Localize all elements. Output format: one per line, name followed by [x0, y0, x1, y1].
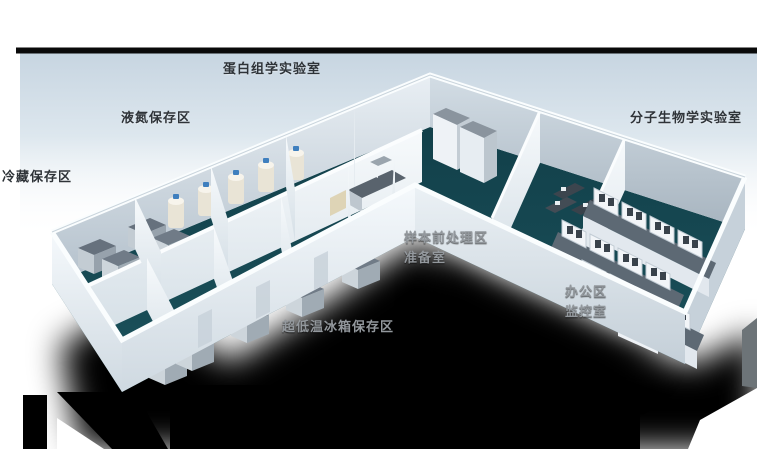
floorplan-illustration	[0, 0, 757, 449]
label-liquid-nitrogen-area: 液氮保存区	[121, 111, 191, 124]
lab-floorplan-scene: 蛋白组学实验室 液氮保存区 冷藏保存区 分子生物学实验室 样本前处理区 准备室 …	[0, 0, 757, 449]
label-cold-storage-area: 冷藏保存区	[2, 170, 72, 183]
label-office-area: 办公区	[565, 285, 607, 298]
top-black-band	[16, 48, 757, 54]
label-molecular-biology-lab: 分子生物学实验室	[630, 111, 742, 124]
label-monitoring-room: 监控室	[565, 305, 607, 318]
label-proteomics-lab: 蛋白组学实验室	[223, 62, 321, 75]
label-preparation-room: 准备室	[404, 251, 446, 264]
label-ult-freezer-storage: 超低温冰箱保存区	[282, 320, 394, 333]
label-sample-pretreatment: 样本前处理区	[404, 231, 488, 244]
